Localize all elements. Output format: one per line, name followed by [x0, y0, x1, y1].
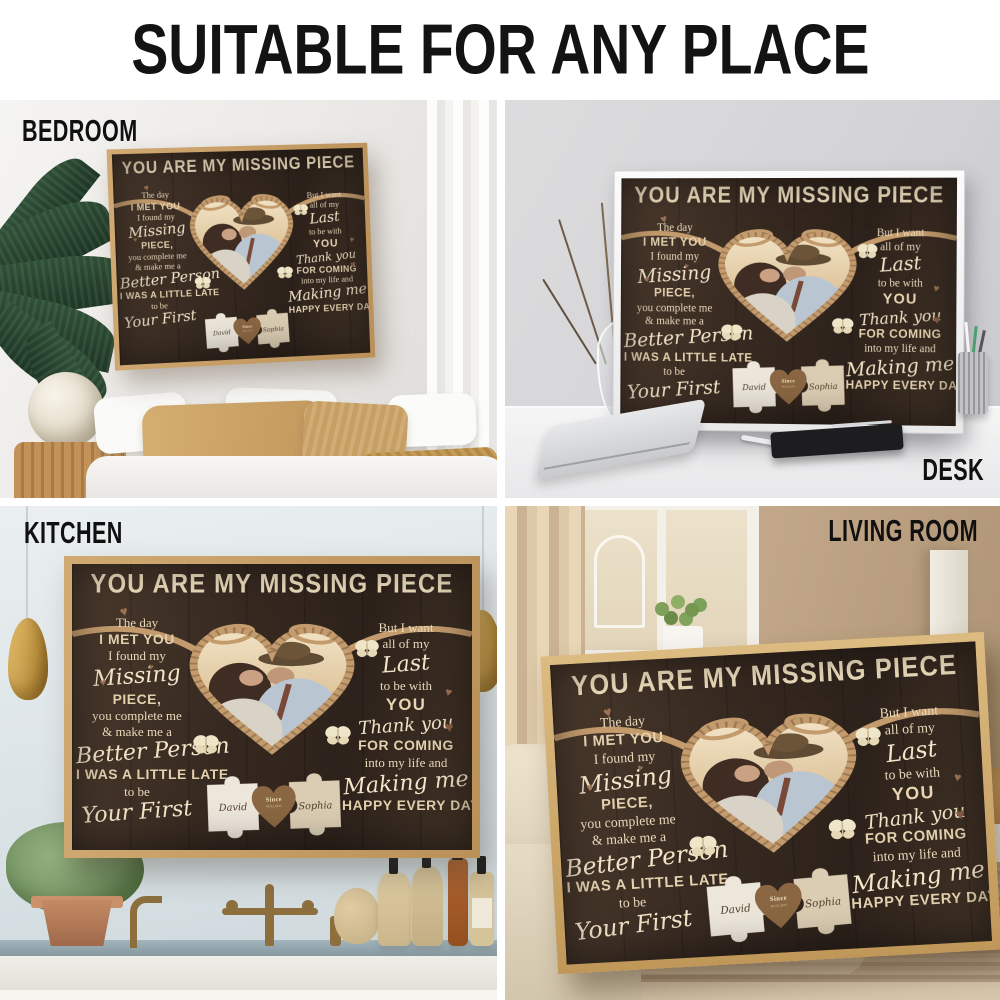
puzzle-name-left: David — [741, 382, 766, 393]
heart-icon: ♥ — [349, 236, 355, 244]
page-header: SUITABLE FOR ANY PLACE — [0, 0, 1000, 100]
heart-since-text: Since — [266, 796, 282, 804]
puzzle-pieces: David Sophia Since 09.02.2015 — [689, 857, 868, 950]
lamp-cord — [482, 506, 484, 620]
scene-bedroom: BEDROOM YOU ARE MY MISSING PIECE — [0, 100, 497, 498]
butterfly-icon — [854, 725, 883, 750]
faucet-handle — [302, 900, 314, 912]
heart-icon: ♥ — [643, 275, 650, 285]
puzzle-pieces: David Sophia Since 09.02.2015 — [192, 765, 356, 843]
poster-line: I WAS A LITTLE LATE — [624, 351, 725, 365]
scene-living-room: YOU ARE MY MISSING PIECE — [505, 506, 1000, 1000]
scene-desk: YOU ARE MY MISSING PIECE — [505, 100, 1000, 498]
butterfly-icon — [292, 203, 309, 217]
butterfly-icon — [354, 638, 380, 660]
poster-line: But I want — [846, 227, 955, 239]
poster-frame: YOU ARE MY MISSING PIECE — [64, 556, 480, 858]
poster-left-text: The day I MET YOU I found my Missing PIE… — [76, 614, 198, 827]
butterfly-icon — [827, 816, 858, 842]
scene-label-living-room: LIVING ROOM — [828, 514, 978, 549]
poster-canvas: YOU ARE MY MISSING PIECE — [550, 641, 992, 964]
poster-line: you complete me — [76, 709, 198, 723]
page-title: SUITABLE FOR ANY PLACE — [131, 10, 869, 91]
poster-line: PIECE, — [76, 692, 198, 708]
poster-line: Missing — [75, 662, 198, 693]
butterfly-icon — [324, 724, 352, 747]
brass-bridge-faucet — [222, 884, 318, 948]
poster-line: HAPPY EVERY DAY — [342, 798, 470, 814]
butterfly-icon — [276, 265, 294, 280]
poster-frame: YOU ARE MY MISSING PIECE — [612, 170, 965, 435]
poster-canvas: YOU ARE MY MISSING PIECE — [620, 178, 957, 426]
scene-label-bedroom: BEDROOM — [22, 114, 138, 149]
branch — [542, 279, 597, 365]
heart-icon: ♥ — [133, 238, 138, 246]
window — [561, 506, 759, 662]
heart-icon: ♥ — [163, 225, 168, 232]
bed-duvet — [86, 456, 497, 498]
brass-faucet-small — [130, 896, 162, 948]
labeled-bottle — [470, 872, 494, 946]
poster-line: I MET YOU — [76, 632, 198, 648]
heart-date-text: 09.02.2015 — [266, 804, 282, 809]
faucet-spout — [265, 884, 274, 946]
butterfly-icon — [831, 316, 855, 336]
poster-line: I MET YOU — [624, 236, 725, 250]
gold-pendant-lamp — [8, 618, 48, 700]
textured-vase — [28, 372, 104, 448]
poster-left-text: The day I MET YOU I found my Missing PIE… — [116, 189, 199, 331]
scene-label-kitchen: KITCHEN — [24, 516, 123, 551]
amber-oil-bottle — [448, 858, 468, 946]
butterfly-icon — [720, 323, 743, 343]
poster-line: FOR COMING — [342, 738, 470, 754]
poster-canvas: YOU ARE MY MISSING PIECE — [72, 564, 472, 850]
puzzle-name-right: Sophia — [298, 800, 333, 812]
butterfly-icon — [192, 733, 220, 756]
poster-left-text: The day I MET YOU I found my Missing PIE… — [557, 710, 699, 944]
heart-since-text: Since — [242, 323, 252, 329]
heart-date-text: 09.02.2015 — [782, 386, 796, 389]
butterfly-icon — [193, 275, 211, 290]
pump-top — [477, 856, 486, 874]
poster-canvas: YOU ARE MY MISSING PIECE — [112, 148, 370, 366]
product-showcase-collage: SUITABLE FOR ANY PLACE BEDROOM — [0, 0, 1000, 1000]
poster-line: Better Person — [75, 738, 198, 769]
puzzle-pieces: David Sophia Since 09.02.2015 — [720, 352, 858, 419]
gourd — [334, 888, 380, 944]
poster-line: PIECE, — [624, 287, 725, 301]
puzzle-name-left: David — [218, 802, 248, 814]
poster-line: you complete me — [624, 302, 725, 314]
poster-line: But I want — [342, 621, 470, 635]
butterfly-icon — [687, 833, 718, 859]
poster-line: Making me — [341, 768, 470, 799]
poster-line: FOR COMING — [846, 327, 955, 342]
counter-base — [0, 990, 497, 1000]
poster-line: Your First — [75, 798, 198, 829]
puzzle-name-right: Sophia — [809, 381, 838, 392]
counter-front — [0, 956, 497, 990]
potted-plant-leaves — [655, 602, 669, 616]
faucet-handle — [226, 900, 238, 912]
heart-icon: ♥ — [350, 261, 357, 271]
poster-line: I WAS A LITTLE LATE — [76, 767, 198, 783]
scene-grid: BEDROOM YOU ARE MY MISSING PIECE — [0, 100, 1000, 1000]
mesh-pen-cup — [958, 352, 988, 414]
poster-line: The day — [624, 222, 725, 234]
soap-bottle — [378, 872, 411, 946]
heart-since-text: Since — [781, 379, 795, 385]
poster-frame: YOU ARE MY MISSING PIECE — [107, 143, 376, 371]
poster-line: Your First — [623, 378, 725, 403]
puzzle-pieces: David Sophia Since 09.02.2015 — [195, 302, 299, 356]
poster-frame: YOU ARE MY MISSING PIECE — [540, 632, 1000, 974]
poster-line: The day — [76, 616, 198, 630]
heart-icon: ♥ — [444, 721, 455, 737]
scene-kitchen: YOU ARE MY MISSING PIECE — [0, 506, 497, 1000]
poster-left-text: The day I MET YOU I found my Missing PIE… — [624, 221, 726, 403]
poster-line: HAPPY EVERY DAY — [845, 379, 954, 394]
poster-line: Missing — [624, 262, 726, 288]
poster-line: Making me — [845, 354, 955, 380]
scene-label-desk: DESK — [922, 453, 984, 488]
poster-line: Better Person — [623, 326, 725, 351]
soap-bottle — [412, 866, 443, 946]
butterfly-icon — [856, 242, 878, 260]
